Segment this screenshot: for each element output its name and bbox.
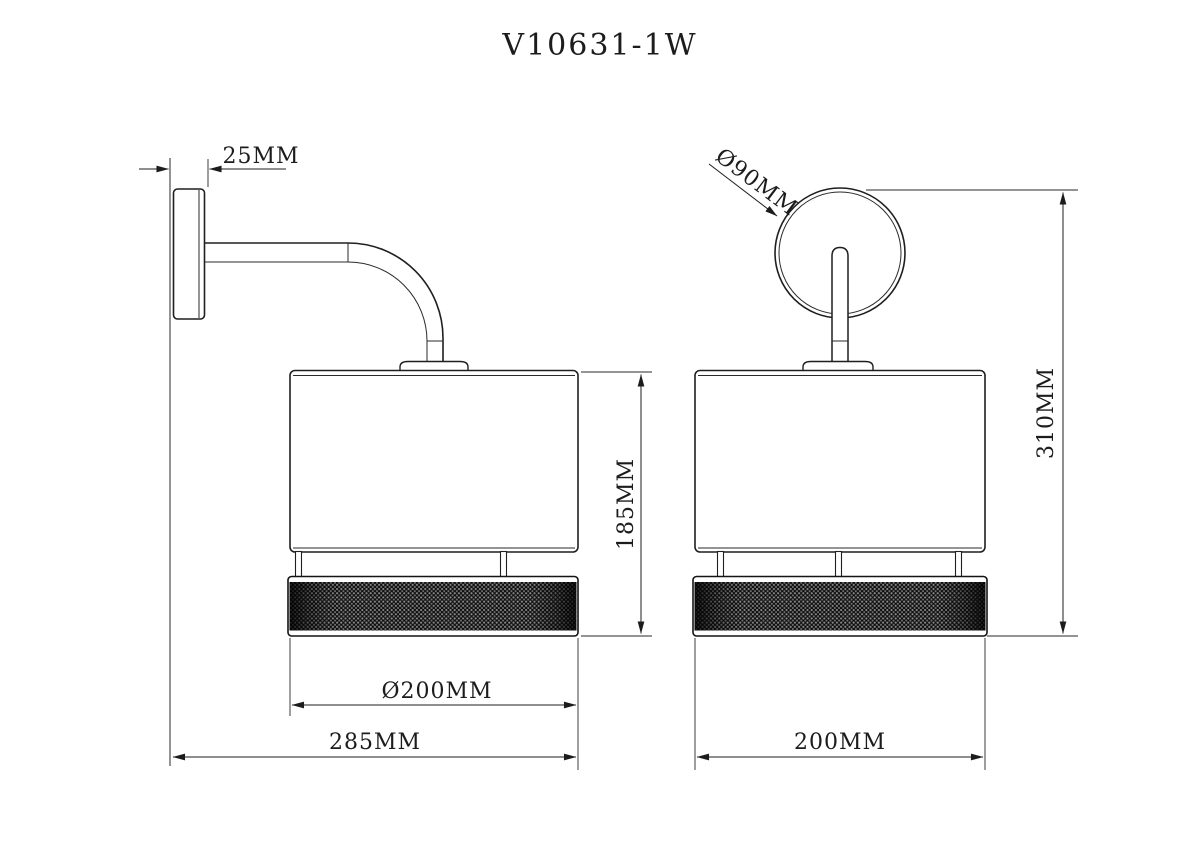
mesh-shading [695, 582, 986, 631]
mesh-diffuser-side [288, 577, 578, 637]
mesh-diffuser-front [693, 577, 987, 637]
dim-label-total-projection: 285MM [329, 730, 421, 755]
dim-label-wall-plate-depth: 25MM [222, 144, 299, 169]
dim-label-shade-width: 200MM [794, 730, 886, 755]
mesh-shading [290, 582, 577, 631]
diffuser-stem [501, 552, 507, 578]
arm-outer-edge [205, 243, 443, 361]
diffuser-stem [956, 552, 962, 578]
front-view: Ø90MM 310MM [693, 144, 1078, 770]
diffuser-stem [836, 552, 842, 578]
lamp-shade-front [695, 371, 985, 553]
stem-body [832, 248, 848, 362]
side-view: 25MM 185MM [139, 144, 652, 770]
diffuser-stem [296, 552, 302, 578]
technical-drawing-canvas: V10631-1W 25MM [0, 0, 1200, 848]
dimension-wall-plate-depth: 25MM [139, 144, 300, 187]
dimension-total-projection: 285MM [173, 730, 576, 757]
wall-mount-plate [174, 189, 205, 319]
wall-lamp-dimension-drawing: V10631-1W 25MM [0, 0, 1200, 848]
shade-body [695, 371, 985, 553]
lamp-shade-side [290, 371, 578, 553]
dim-label-total-height: 310MM [1034, 367, 1059, 459]
dim-label-shade-height: 185MM [614, 458, 639, 550]
diffuser-stem [718, 552, 724, 578]
shade-body [290, 371, 578, 553]
mounting-arm [205, 243, 443, 361]
dim-label-backplate-diameter: Ø90MM [710, 144, 802, 222]
dimension-backplate-diameter: Ø90MM [709, 144, 802, 222]
arm-inner-edge [205, 262, 427, 361]
dimension-shade-height: 185MM [581, 372, 652, 636]
drawing-title: V10631-1W [501, 28, 697, 63]
dim-label-shade-diameter: Ø200MM [381, 679, 492, 704]
dimension-shade-width: 200MM [695, 638, 985, 770]
front-stem [832, 248, 848, 362]
